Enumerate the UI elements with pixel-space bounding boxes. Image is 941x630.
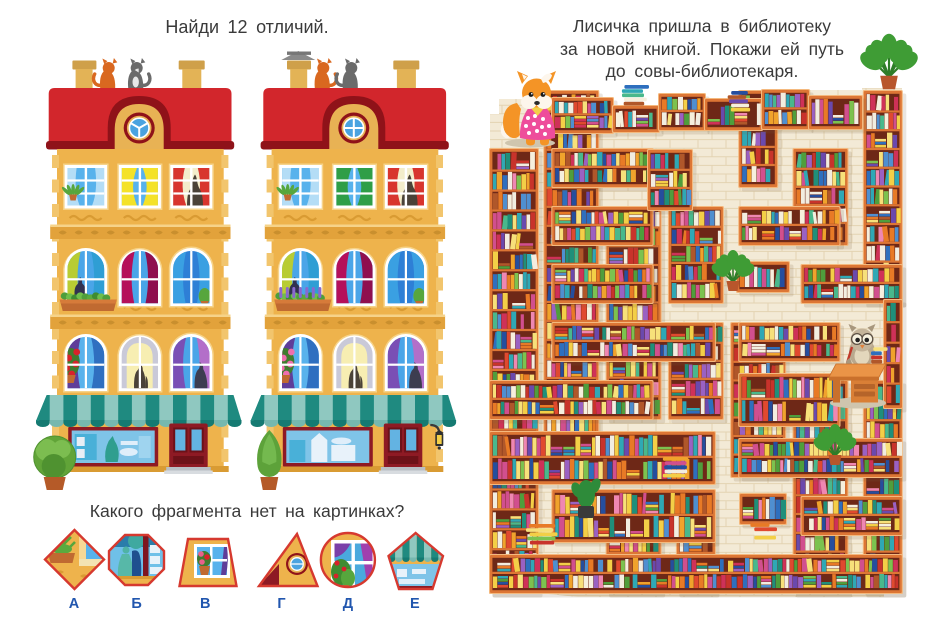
svg-text:Найди 12 отличий.: Найди 12 отличий. — [165, 17, 328, 37]
svg-text:до совы-библиотекаря.: до совы-библиотекаря. — [606, 61, 799, 81]
svg-text:Е: Е — [410, 596, 420, 612]
svg-text:Д: Д — [343, 596, 354, 612]
svg-text:Какого фрагмента нет на картин: Какого фрагмента нет на картинках? — [90, 501, 405, 521]
svg-text:В: В — [200, 596, 210, 612]
svg-text:Лисичка пришла в библиотеку: Лисичка пришла в библиотеку — [573, 16, 831, 36]
svg-text:Б: Б — [131, 596, 141, 612]
svg-text:Г: Г — [277, 596, 285, 612]
svg-text:за новой книгой. Покажи ей пут: за новой книгой. Покажи ей путь — [560, 39, 844, 59]
svg-text:А: А — [69, 596, 80, 612]
